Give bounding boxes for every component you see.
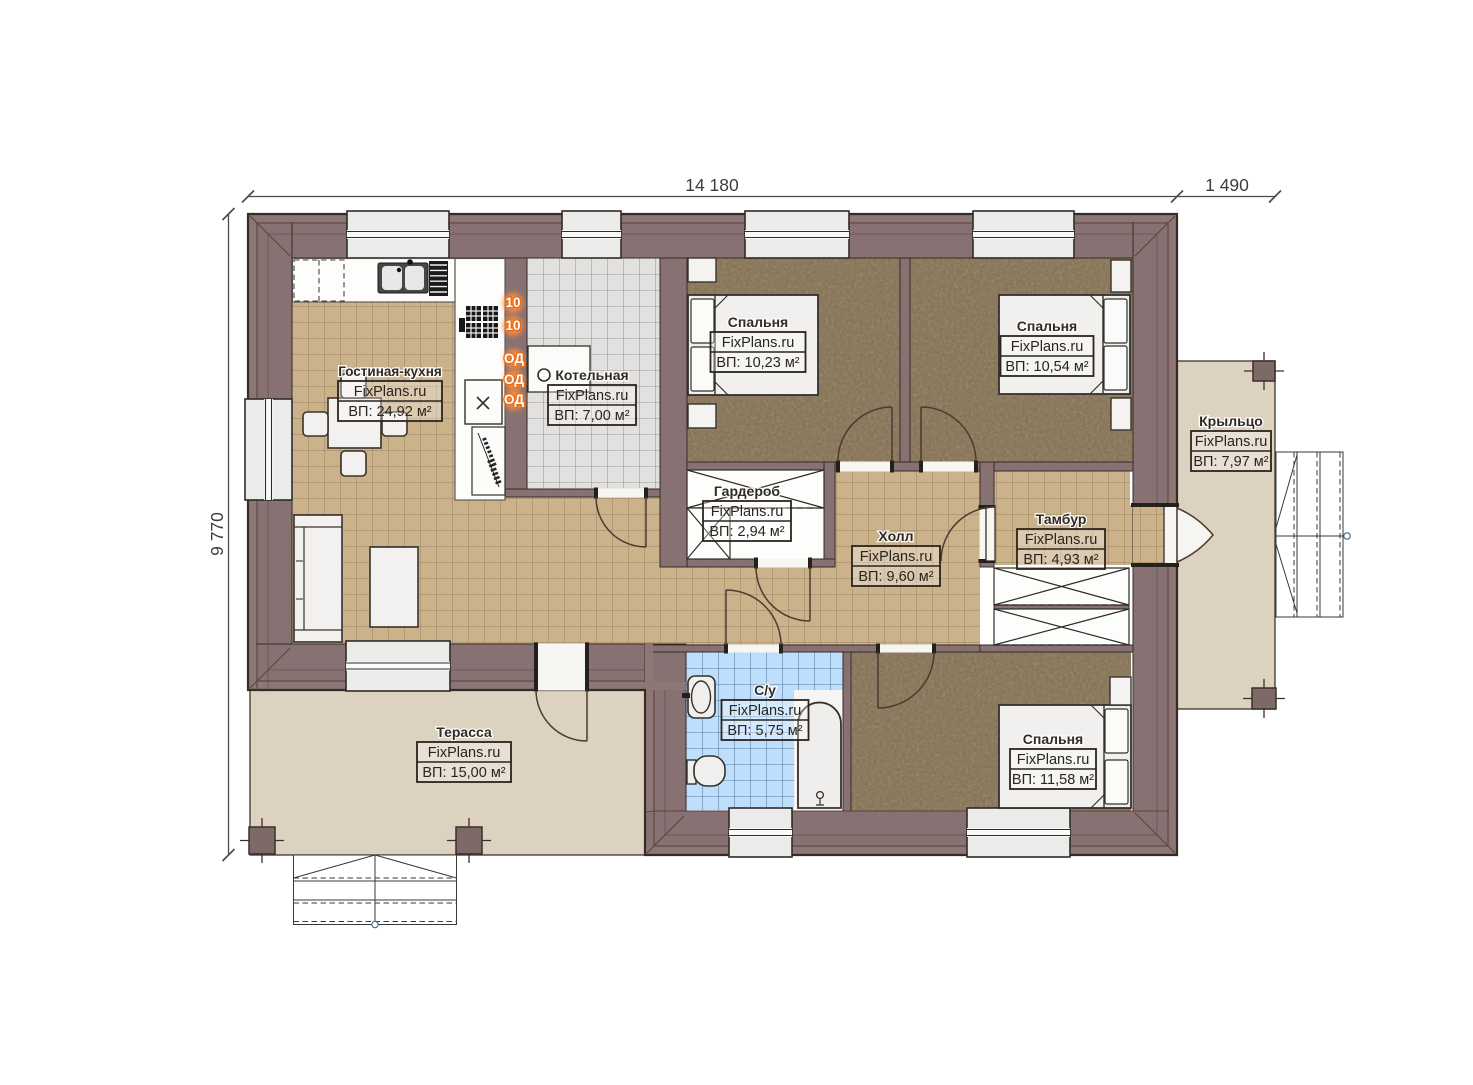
svg-text:С/у: С/у: [754, 682, 776, 698]
svg-text:ОД: ОД: [504, 372, 524, 387]
svg-text:ВП: 2,94 м²: ВП: 2,94 м²: [709, 524, 784, 540]
svg-text:FixPlans.ru: FixPlans.ru: [1017, 752, 1090, 768]
svg-text:ОД: ОД: [504, 351, 524, 366]
svg-text:ВП: 4,93 м²: ВП: 4,93 м²: [1023, 552, 1098, 568]
svg-text:FixPlans.ru: FixPlans.ru: [1011, 339, 1084, 355]
svg-text:Тамбур: Тамбур: [1036, 511, 1087, 527]
svg-text:ВП: 7,97 м²: ВП: 7,97 м²: [1193, 454, 1268, 470]
svg-text:Крыльцо: Крыльцо: [1199, 413, 1263, 429]
svg-text:Терасса: Терасса: [436, 724, 492, 740]
svg-text:ВП: 24,92 м²: ВП: 24,92 м²: [348, 404, 431, 420]
svg-text:Гардероб: Гардероб: [714, 483, 781, 499]
svg-text:10: 10: [505, 318, 520, 333]
svg-text:FixPlans.ru: FixPlans.ru: [1195, 434, 1268, 450]
svg-text:ВП: 10,54 м²: ВП: 10,54 м²: [1005, 359, 1088, 375]
svg-text:Спальня: Спальня: [1017, 318, 1077, 334]
svg-text:FixPlans.ru: FixPlans.ru: [556, 388, 629, 404]
svg-text:Спальня: Спальня: [728, 314, 788, 330]
svg-text:Холл: Холл: [878, 528, 913, 544]
svg-text:ВП: 11,58 м²: ВП: 11,58 м²: [1012, 772, 1094, 788]
svg-text:Котельная: Котельная: [555, 367, 628, 383]
svg-text:Спальня: Спальня: [1023, 731, 1083, 747]
svg-text:ВП: 15,00 м²: ВП: 15,00 м²: [422, 765, 505, 781]
svg-text:1 490: 1 490: [1205, 175, 1249, 195]
svg-text:Гостиная-кухня: Гостиная-кухня: [338, 364, 441, 379]
svg-text:FixPlans.ru: FixPlans.ru: [722, 335, 795, 351]
svg-text:10: 10: [505, 295, 520, 310]
svg-text:FixPlans.ru: FixPlans.ru: [860, 549, 933, 565]
svg-text:ВП: 10,23 м²: ВП: 10,23 м²: [716, 355, 799, 371]
svg-text:ВП: 7,00 м²: ВП: 7,00 м²: [554, 408, 629, 424]
svg-text:FixPlans.ru: FixPlans.ru: [354, 384, 427, 400]
svg-text:ОД: ОД: [504, 392, 524, 407]
svg-text:FixPlans.ru: FixPlans.ru: [729, 703, 802, 719]
svg-text:ВП: 9,60 м²: ВП: 9,60 м²: [858, 569, 933, 585]
svg-text:FixPlans.ru: FixPlans.ru: [711, 504, 784, 520]
svg-text:FixPlans.ru: FixPlans.ru: [1025, 532, 1098, 548]
svg-text:FixPlans.ru: FixPlans.ru: [428, 745, 501, 761]
svg-text:9 770: 9 770: [207, 512, 227, 556]
svg-text:ВП: 5,75 м²: ВП: 5,75 м²: [727, 723, 802, 739]
svg-text:14 180: 14 180: [685, 175, 739, 195]
